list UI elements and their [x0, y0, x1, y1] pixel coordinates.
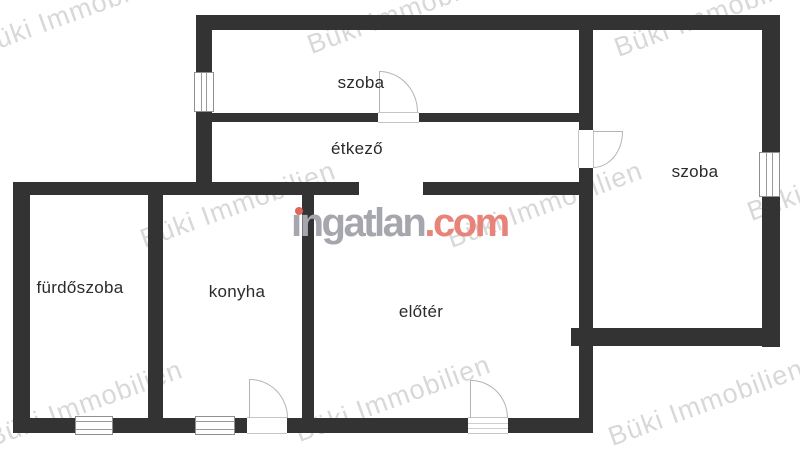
- bath-kitchen-wall: [148, 195, 163, 433]
- window-kitchen-bottom: [195, 416, 235, 435]
- window-kitchen-bottom-pane: [196, 421, 234, 429]
- mid-vertical-wall: [579, 15, 593, 433]
- room-label-etkezo: étkező: [331, 139, 383, 159]
- room-label-szoba-right: szoba: [672, 162, 719, 182]
- logo-i-dot-icon: [295, 207, 303, 215]
- room-label-konyha: konyha: [209, 282, 266, 302]
- ingatlan-logo: ıngatlan.com: [291, 203, 508, 243]
- window-right-wall-pane: [766, 153, 773, 196]
- watermark-text-0: Büki Immobilien: [0, 0, 177, 62]
- logo-name-text: ıngatlan: [291, 201, 424, 245]
- arc-entry-door: [471, 380, 508, 418]
- logo-suffix-text: .com: [424, 201, 507, 245]
- arc-kitchen-door: [250, 379, 288, 418]
- watermark-text-8: Büki Immobilien: [604, 353, 800, 450]
- leaf-entry-door: [470, 380, 471, 418]
- window-bath-bottom-pane: [76, 421, 112, 429]
- leaf-szoba-right-door: [593, 131, 623, 132]
- leaf-kitchen-door: [249, 379, 250, 418]
- room-label-eloter: előtér: [399, 302, 443, 322]
- window-left-wall-pane: [201, 73, 208, 111]
- gap-entry-door: [468, 417, 508, 434]
- left-lower-wall: [13, 182, 30, 433]
- east-horizontal-wall: [423, 182, 579, 195]
- gap-entry-door-sill: [468, 423, 508, 429]
- window-bath-bottom: [75, 416, 113, 435]
- gap-szoba-right-door: [578, 130, 594, 168]
- room-label-szoba-top: szoba: [338, 73, 385, 93]
- watermark-text-7: Büki Immobilien: [291, 349, 495, 448]
- arc-szoba-top-door: [379, 71, 418, 112]
- gap-szoba-top-door: [378, 112, 419, 123]
- top-wall: [196, 15, 780, 30]
- gap-kitchen-door: [247, 417, 287, 434]
- floorplan-canvas: Büki ImmobilienBüki ImmobilienBüki Immob…: [0, 0, 800, 450]
- room-label-furdoszoba: fürdőszoba: [36, 278, 123, 298]
- window-left-wall: [194, 72, 214, 112]
- watermark-text-1: Büki Immobilien: [303, 0, 507, 61]
- window-right-wall: [759, 152, 780, 197]
- szoba2-bottom-wall: [571, 328, 780, 346]
